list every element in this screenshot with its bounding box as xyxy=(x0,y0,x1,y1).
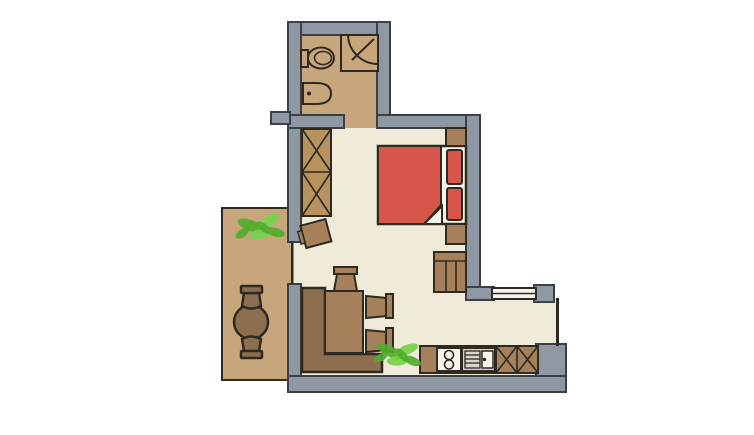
wall-bathroom-bottom xyxy=(288,115,344,128)
washbasin-icon xyxy=(303,83,331,104)
wardrobe xyxy=(302,129,331,216)
dining-stool xyxy=(334,267,357,291)
balcony-stool-south xyxy=(241,337,262,359)
wall-bathroom-top xyxy=(288,22,390,35)
wall-kitchen-top-left xyxy=(466,287,494,300)
bed-blanket xyxy=(378,146,441,224)
wall-bottom xyxy=(288,376,566,392)
dining-table xyxy=(325,291,363,353)
kitchen xyxy=(420,346,538,373)
corner-shower-icon xyxy=(341,35,378,71)
balcony-door-glass-line xyxy=(291,242,294,284)
wall-stub-left xyxy=(271,112,290,124)
wall-bedroom-right xyxy=(466,115,480,300)
nightstand-top xyxy=(446,128,466,146)
kitchen-sink-icon xyxy=(462,348,495,371)
bathroom-door-opening xyxy=(344,115,377,128)
glass-wall-right xyxy=(556,298,559,346)
toilet-icon xyxy=(308,48,334,69)
kitchen-cabinets xyxy=(496,346,538,373)
stove-icon xyxy=(437,348,461,371)
double-bed xyxy=(378,146,466,224)
bed-pillow-top xyxy=(447,150,462,184)
wall-bedroom-top xyxy=(377,115,480,128)
bed-pillow-bottom xyxy=(447,188,462,220)
wall-left-upper xyxy=(288,22,301,242)
dining-chair-1 xyxy=(366,294,393,318)
balcony-stool-north xyxy=(241,286,262,309)
dresser xyxy=(434,252,466,292)
balcony-round-table xyxy=(234,305,268,339)
floor-plan-drawing xyxy=(0,0,754,435)
floor-plan-canvas xyxy=(0,0,754,435)
nightstand-bottom xyxy=(446,224,466,244)
toilet-tank xyxy=(301,50,308,67)
